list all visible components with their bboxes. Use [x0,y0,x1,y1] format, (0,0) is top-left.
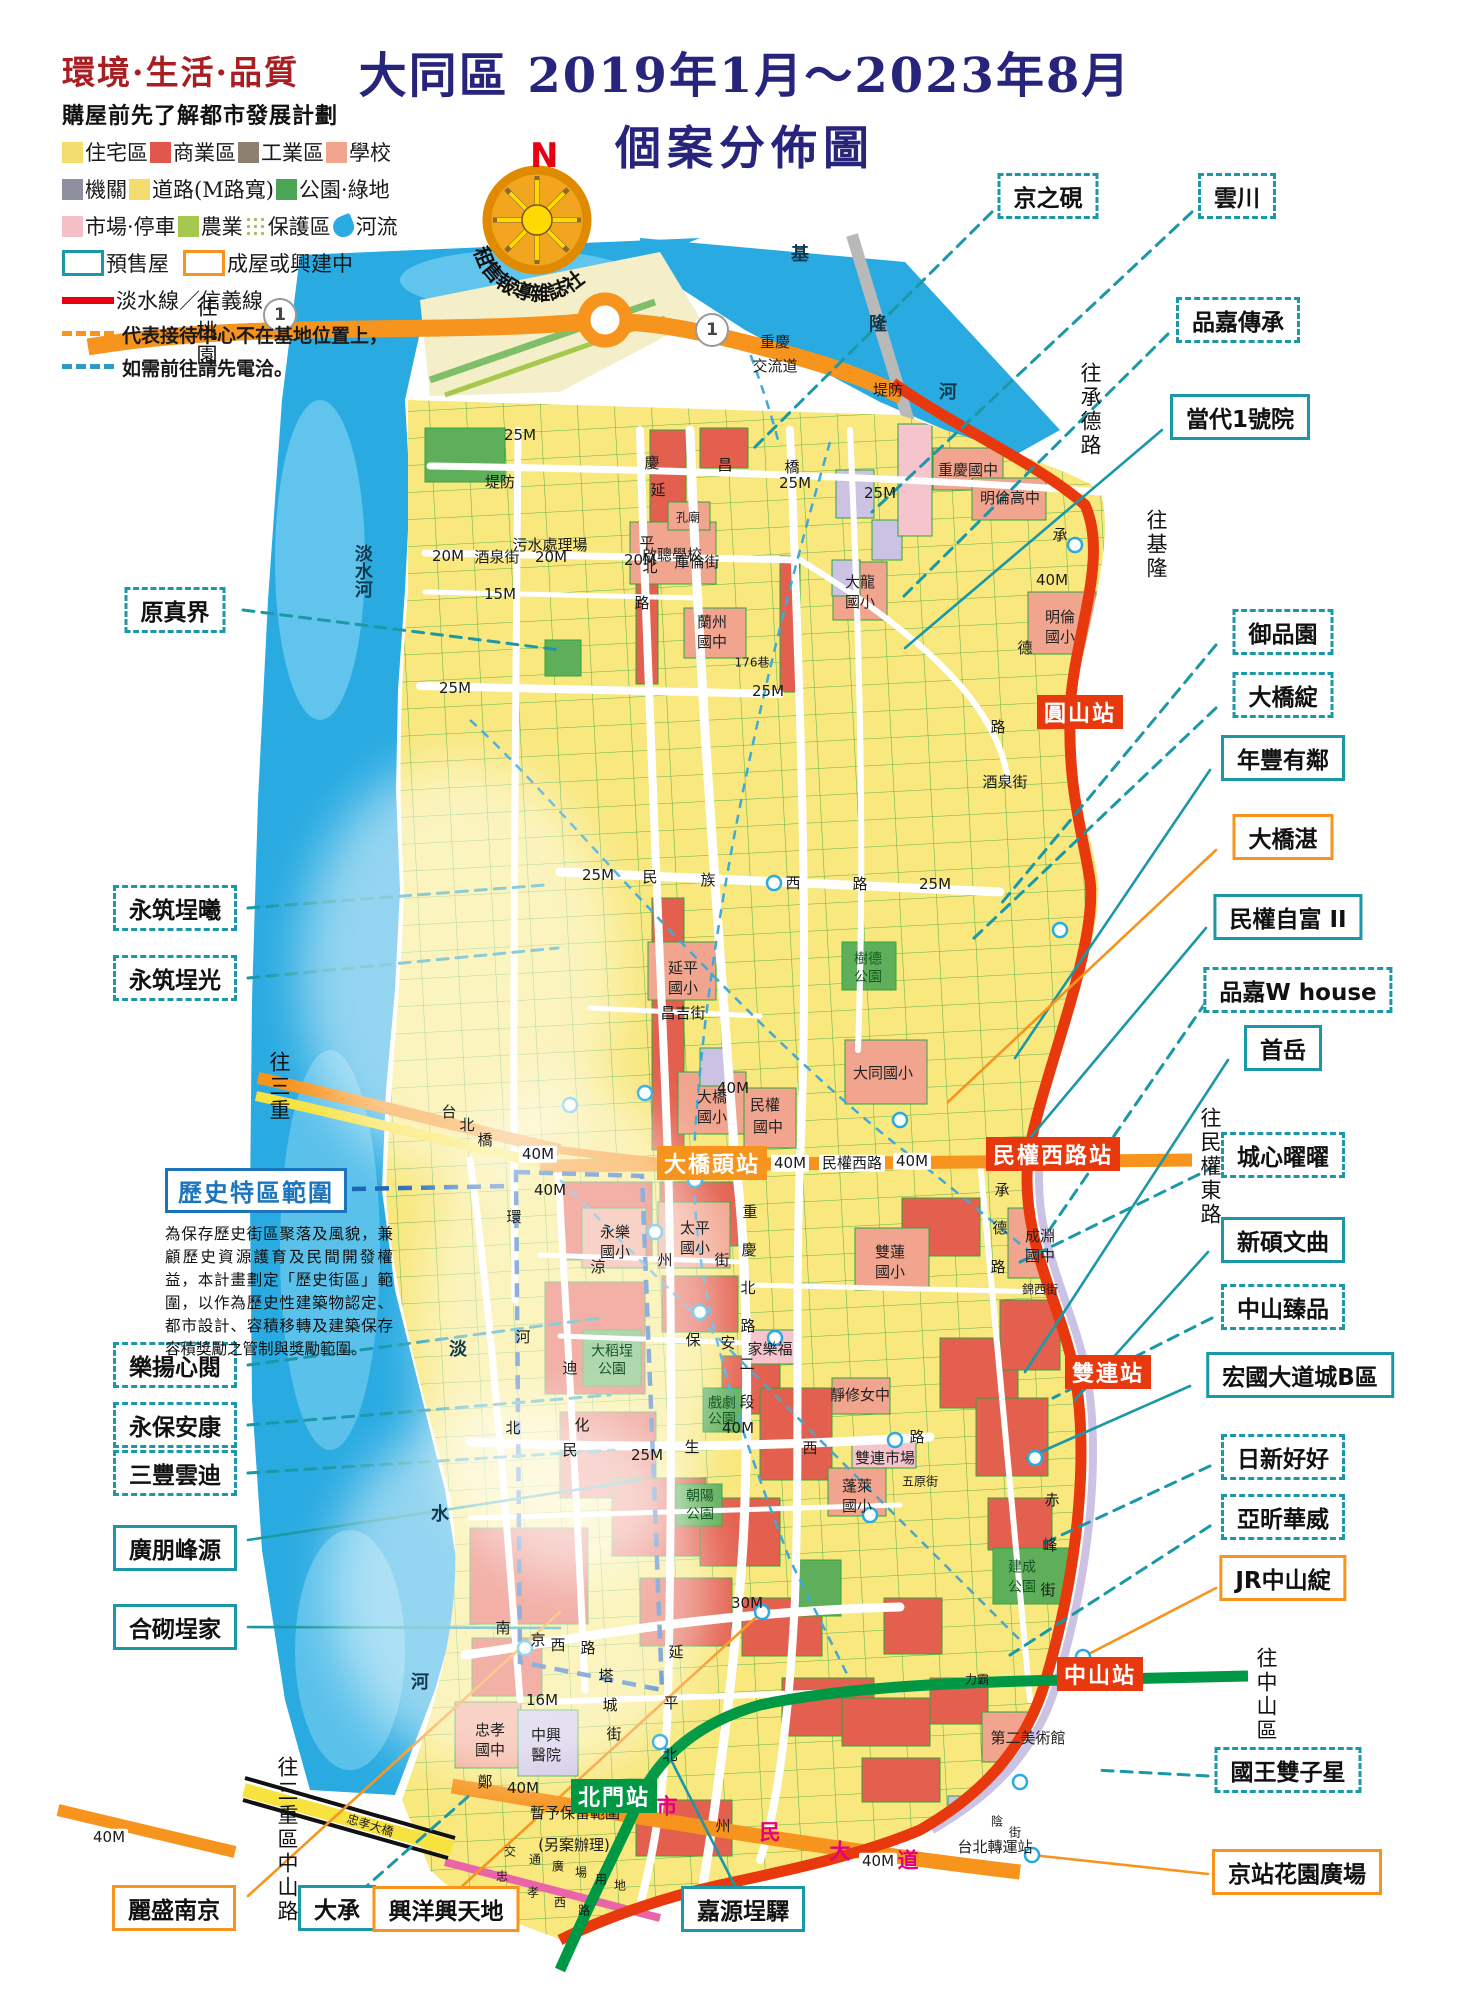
zone-swatch [62,216,83,237]
legend-item: 公園·綠地 [276,174,390,204]
legend-item: 住宅區 [62,137,148,167]
rail-line-label: 淡水線／信義線 [116,285,263,315]
legend-item: 商業區 [150,137,236,167]
zone-swatch [178,216,199,237]
zone-label: 公園·綠地 [299,174,390,204]
zone-label: 農業 [201,211,243,241]
legend-rail-row: 淡水線／信義線 [62,285,392,315]
legend-status-row: 預售屋成屋或興建中 [62,248,392,278]
legend-notes: 代表接待中心不在基地位置上，如需前往請先電洽。 [62,321,392,381]
poster-page: 11重慶交流道堤防堤防基隆河淡水河淡水河25M慶昌橋25M25M污水處理場啟聰學… [0,0,1474,2000]
historic-note-body: 為保存歷史街區聚落及風貌，兼顧歷史資源護育及民間開發權益，本計畫劃定「歷史街區」… [165,1223,393,1361]
zone-swatch [326,142,347,163]
legend-zone-row: 機關道路(M路寬)公園·綠地 [62,174,392,204]
leader-line [1083,1588,1216,1657]
compass: N 租售報導雜誌社 [452,150,622,320]
note-text: 如需前往請先電洽。 [122,354,293,381]
zone-label: 河流 [356,211,398,241]
legend-item: 河流 [333,211,398,241]
zone-swatch [62,179,83,200]
status-label: 預售屋 [106,248,169,278]
legend-heading: 環境·生活·品質 [62,46,392,94]
historic-district-note: 歷史特區範圍 為保存歷史街區聚落及風貌，兼顧歷史資源護育及民間開發權益，本計畫劃… [165,1168,395,1361]
legend-item: 道路(M路寬) [129,174,274,204]
rail-line-swatch [62,297,114,304]
zone-swatch [276,179,297,200]
dash-sample [62,364,114,369]
zone-swatch [330,212,357,239]
legend-status-item: 預售屋 [62,248,169,278]
status-label: 成屋或興建中 [227,248,353,278]
compass-north-label: N [530,136,558,176]
leader-line [1048,1002,1206,1232]
leader-line [1032,1855,1208,1874]
leader-line [1095,1770,1208,1776]
historic-note-title: 歷史特區範圍 [165,1168,347,1213]
title-line1: 大同區 2019年1月～2023年8月 [359,36,1132,106]
legend-zone-row: 市場·停車農業保護區河流 [62,211,392,241]
zone-swatch [238,142,259,163]
legend-note: 代表接待中心不在基地位置上， [62,321,392,348]
status-swatch [183,250,225,276]
legend-rail-item: 淡水線／信義線 [62,285,263,315]
leader-line [1075,1252,1208,1400]
legend-item: 保護區 [245,211,331,241]
note-text: 代表接待中心不在基地位置上， [122,321,388,348]
legend-item: 機關 [62,174,127,204]
zone-swatch [62,142,83,163]
zone-label: 道路(M路寬) [152,174,274,204]
zone-swatch [150,142,171,163]
zone-label: 住宅區 [85,137,148,167]
legend-item: 工業區 [238,137,324,167]
legend-subheading: 購屋前先了解都市發展計劃 [62,98,392,130]
zone-label: 商業區 [173,137,236,167]
legend-status-item: 成屋或興建中 [183,248,353,278]
zone-swatch [245,216,266,237]
status-swatch [62,250,104,276]
watermark [330,1400,710,1780]
zone-label: 機關 [85,174,127,204]
legend-item: 農業 [178,211,243,241]
zone-label: 保護區 [268,211,331,241]
legend-note: 如需前往請先電洽。 [62,354,392,381]
legend-item: 市場·停車 [62,211,176,241]
zone-swatch [129,179,150,200]
zone-label: 市場·停車 [85,211,176,241]
zone-label: 工業區 [261,137,324,167]
riverside-expressway [58,1810,235,1852]
dash-sample [62,331,114,336]
legend-zone-row: 住宅區商業區工業區學校 [62,137,392,167]
legend: 環境·生活·品質 購屋前先了解都市發展計劃 住宅區商業區工業區學校 機關道路(M… [62,46,392,381]
